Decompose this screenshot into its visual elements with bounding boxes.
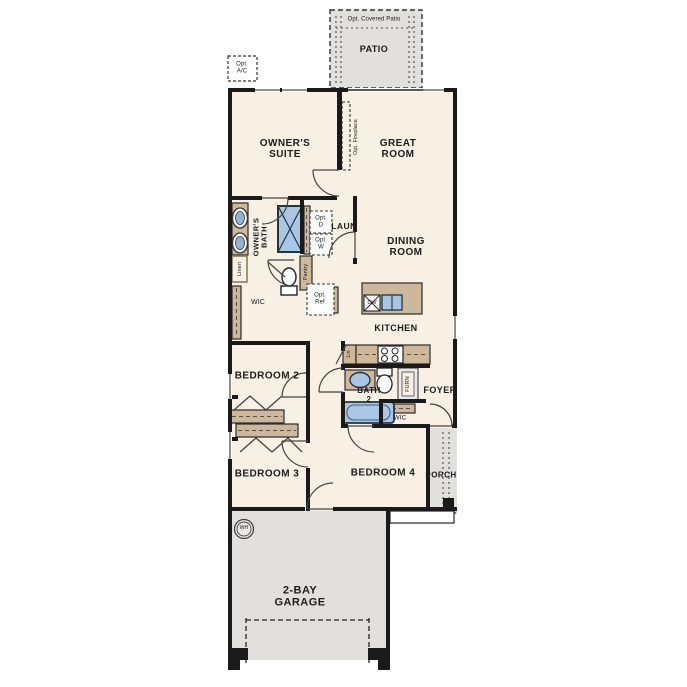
opt-ac-label: Opt. A/C <box>236 61 248 74</box>
front-stoop <box>390 511 454 523</box>
furnace-label: FURN <box>405 376 411 392</box>
porch-label: PORCH <box>425 472 456 481</box>
bathtub <box>343 402 394 423</box>
opt-washer-label: Opt. W <box>315 237 327 250</box>
kitchen-label: KITCHEN <box>374 323 417 333</box>
foyer-wic-label: WIC <box>394 414 407 421</box>
bedroom3-label: BEDROOM 3 <box>235 468 300 479</box>
opt-ref-label: Opt. Ref <box>314 292 326 305</box>
opt-fireplace-label: Opt. Fireplace <box>353 119 359 155</box>
owners-toilet <box>281 268 297 295</box>
floor-plan: Opt. Covered Patio PATIO Opt. A/C OWNER'… <box>0 0 687 687</box>
bedroom2-label: BEDROOM 2 <box>235 370 300 381</box>
water-heater-label: WH <box>240 526 249 532</box>
patio-label: PATIO <box>360 44 388 54</box>
range <box>378 346 403 363</box>
bedroom4-label: BEDROOM 4 <box>351 467 416 478</box>
opt-covered-patio-label: Opt. Covered Patio <box>348 17 401 24</box>
shower <box>278 206 302 252</box>
bath2-label: BATH 2 <box>357 387 380 405</box>
owners-wic-label: WIC <box>251 299 265 307</box>
linen-label: Linen <box>236 262 242 276</box>
garage-label: 2-BAY GARAGE <box>275 585 326 610</box>
floor-plan-drawing <box>0 0 687 687</box>
laundry-label: LAUN <box>331 222 356 232</box>
dining-room-label: DINING ROOM <box>387 236 425 258</box>
owners-suite-label: OWNER'S SUITE <box>260 138 311 160</box>
owners-bath-label: OWNER'S BATH <box>253 218 270 257</box>
great-room-label: GREAT ROOM <box>380 138 417 160</box>
dishwasher-label: DW <box>367 300 376 306</box>
lin-label: Lin <box>347 351 353 358</box>
pantry-label: Pantry <box>303 264 309 281</box>
foyer-label: FOYER <box>423 385 456 395</box>
opt-dryer-label: Opt. D <box>315 215 327 228</box>
island-sink <box>382 295 402 310</box>
